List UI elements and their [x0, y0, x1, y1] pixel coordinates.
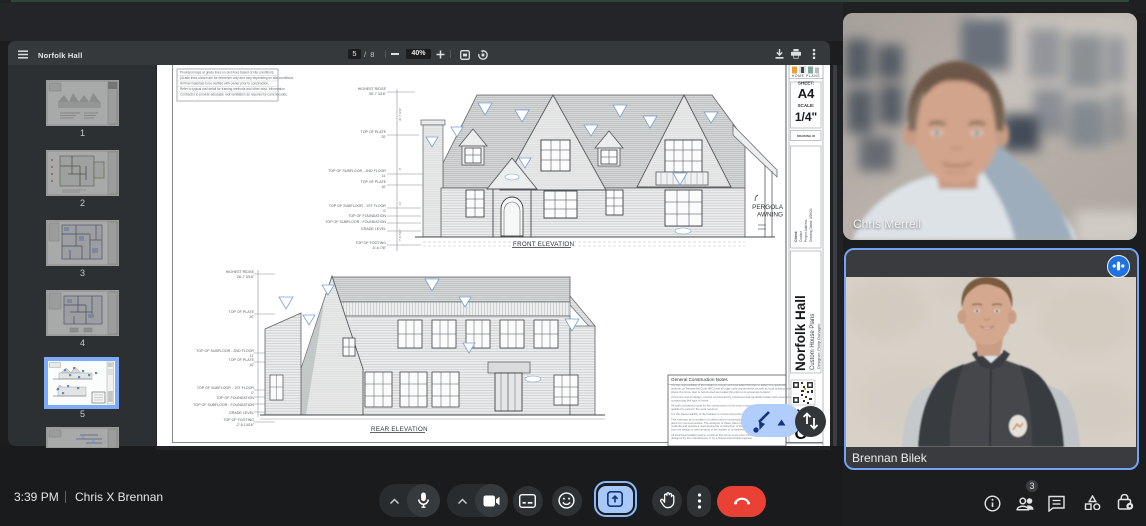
- svg-text:0': 0': [383, 209, 386, 213]
- svg-text:11': 11': [382, 174, 387, 178]
- svg-text:36'-7 3/16": 36'-7 3/16": [369, 92, 387, 96]
- svg-text:20': 20': [249, 315, 254, 319]
- svg-text:designed by the manufacturer o: designed by the manufacturer or by a lic…: [671, 436, 753, 440]
- svg-text:REAR ELEVATION: REAR ELEVATION: [371, 426, 428, 433]
- svg-text:Norfolk Hall: Norfolk Hall: [793, 295, 808, 371]
- svg-text:TOP OF PLATE: TOP OF PLATE: [229, 310, 255, 314]
- svg-text:SCALE:: SCALE:: [797, 103, 815, 108]
- svg-text:GRADE LEVEL: GRADE LEVEL: [361, 227, 386, 231]
- svg-text:Refer to typical wall detail f: Refer to typical wall detail for framing…: [180, 87, 286, 91]
- svg-text:-2'-6 14/16": -2'-6 14/16": [236, 423, 255, 427]
- svg-text:A4: A4: [798, 86, 815, 101]
- svg-text:TOP OF FOUNDATION: TOP OF FOUNDATION: [216, 396, 254, 400]
- svg-text:TOP OF FOOTING: TOP OF FOOTING: [355, 241, 386, 245]
- svg-text:HIGHEST RIDGE: HIGHEST RIDGE: [226, 270, 255, 274]
- svg-text:AWNING: AWNING: [757, 212, 783, 219]
- svg-text:Project Address: Project Address: [804, 219, 808, 242]
- svg-text:10': 10': [249, 363, 254, 367]
- svg-text:26'-7 3/16": 26'-7 3/16": [237, 275, 255, 279]
- svg-text:TOP OF SUBFLOOR - FOUNDATION: TOP OF SUBFLOOR - FOUNDATION: [193, 403, 254, 407]
- svg-text:(Grade lines shown are for ref: (Grade lines shown are for reference onl…: [180, 76, 294, 80]
- svg-text:PERGOLA: PERGOLA: [752, 204, 784, 211]
- svg-text:DRAWING ID: DRAWING ID: [797, 134, 816, 138]
- svg-text:Client:: Client:: [794, 231, 798, 242]
- svg-text:TOP OF SUBFLOOR - FOUNDATION: TOP OF SUBFLOOR - FOUNDATION: [325, 220, 386, 224]
- svg-text:0': 0': [251, 391, 254, 395]
- svg-text:Contact: Contact: [799, 231, 803, 242]
- svg-text:TOP OF SUBFLOOR - 2ND FLOOR: TOP OF SUBFLOOR - 2ND FLOOR: [328, 169, 386, 173]
- svg-text:9': 9': [398, 167, 402, 170]
- svg-text:20': 20': [381, 135, 386, 139]
- svg-text:HIGHEST RIDGE: HIGHEST RIDGE: [358, 87, 387, 91]
- svg-text:1/4": 1/4": [795, 110, 817, 124]
- svg-text:SHEET:: SHEET:: [798, 81, 815, 86]
- svg-text:10': 10': [381, 185, 386, 189]
- svg-text:HOME PLANS: HOME PLANS: [792, 74, 820, 78]
- svg-text:7'-8 7/16": 7'-8 7/16": [398, 229, 402, 241]
- svg-text:qualified to perform the work: qualified to perform the work required.: [671, 407, 718, 411]
- svg-text:constructing this type of home: constructing this type of home.: [671, 398, 709, 402]
- svg-text:FRONT ELEVATION: FRONT ELEVATION: [513, 241, 574, 248]
- svg-text:All final materials to be veri: All final materials to be verified with …: [180, 82, 269, 86]
- svg-text:General Construction Notes: General Construction Notes: [671, 377, 728, 382]
- svg-text:TOP OF SUBFLOOR - 1ST FLOOR: TOP OF SUBFLOOR - 1ST FLOOR: [329, 204, 387, 208]
- svg-text:TOP OF SUBFLOOR - 1ST FLOOR: TOP OF SUBFLOOR - 1ST FLOOR: [197, 386, 255, 390]
- svg-text:Provided maps at grade lines o: Provided maps at grade lines on plot lin…: [180, 71, 274, 75]
- svg-text:-5'-6 7/8": -5'-6 7/8": [372, 246, 387, 250]
- svg-text:Drawing Dated: 4/26/24: Drawing Dated: 4/26/24: [809, 208, 813, 242]
- svg-text:TOP OF FOUNDATION: TOP OF FOUNDATION: [348, 214, 386, 218]
- svg-text:TOP OF PLATE: TOP OF PLATE: [229, 358, 255, 362]
- svg-text:36'-7 3/16": 36'-7 3/16": [398, 108, 402, 121]
- svg-text:TOP OF PLATE: TOP OF PLATE: [361, 180, 387, 184]
- svg-text:GRADE LEVEL: GRADE LEVEL: [229, 411, 254, 415]
- svg-text:TOP OF PLATE: TOP OF PLATE: [361, 130, 387, 134]
- svg-text:where the home plan is constru: where the home plan is constructed and a…: [671, 390, 771, 394]
- svg-text:Designer: Philip Duhagen: Designer: Philip Duhagen: [816, 324, 821, 369]
- svg-text:TOP OF SUBFLOOR - 2ND FLOOR: TOP OF SUBFLOOR - 2ND FLOOR: [196, 349, 254, 353]
- svg-text:TOP OF FOOTING: TOP OF FOOTING: [223, 418, 254, 422]
- svg-text:Contractor to provide adequate: Contractor to provide adequate roof vent…: [180, 93, 288, 97]
- svg-text:11': 11': [398, 201, 402, 205]
